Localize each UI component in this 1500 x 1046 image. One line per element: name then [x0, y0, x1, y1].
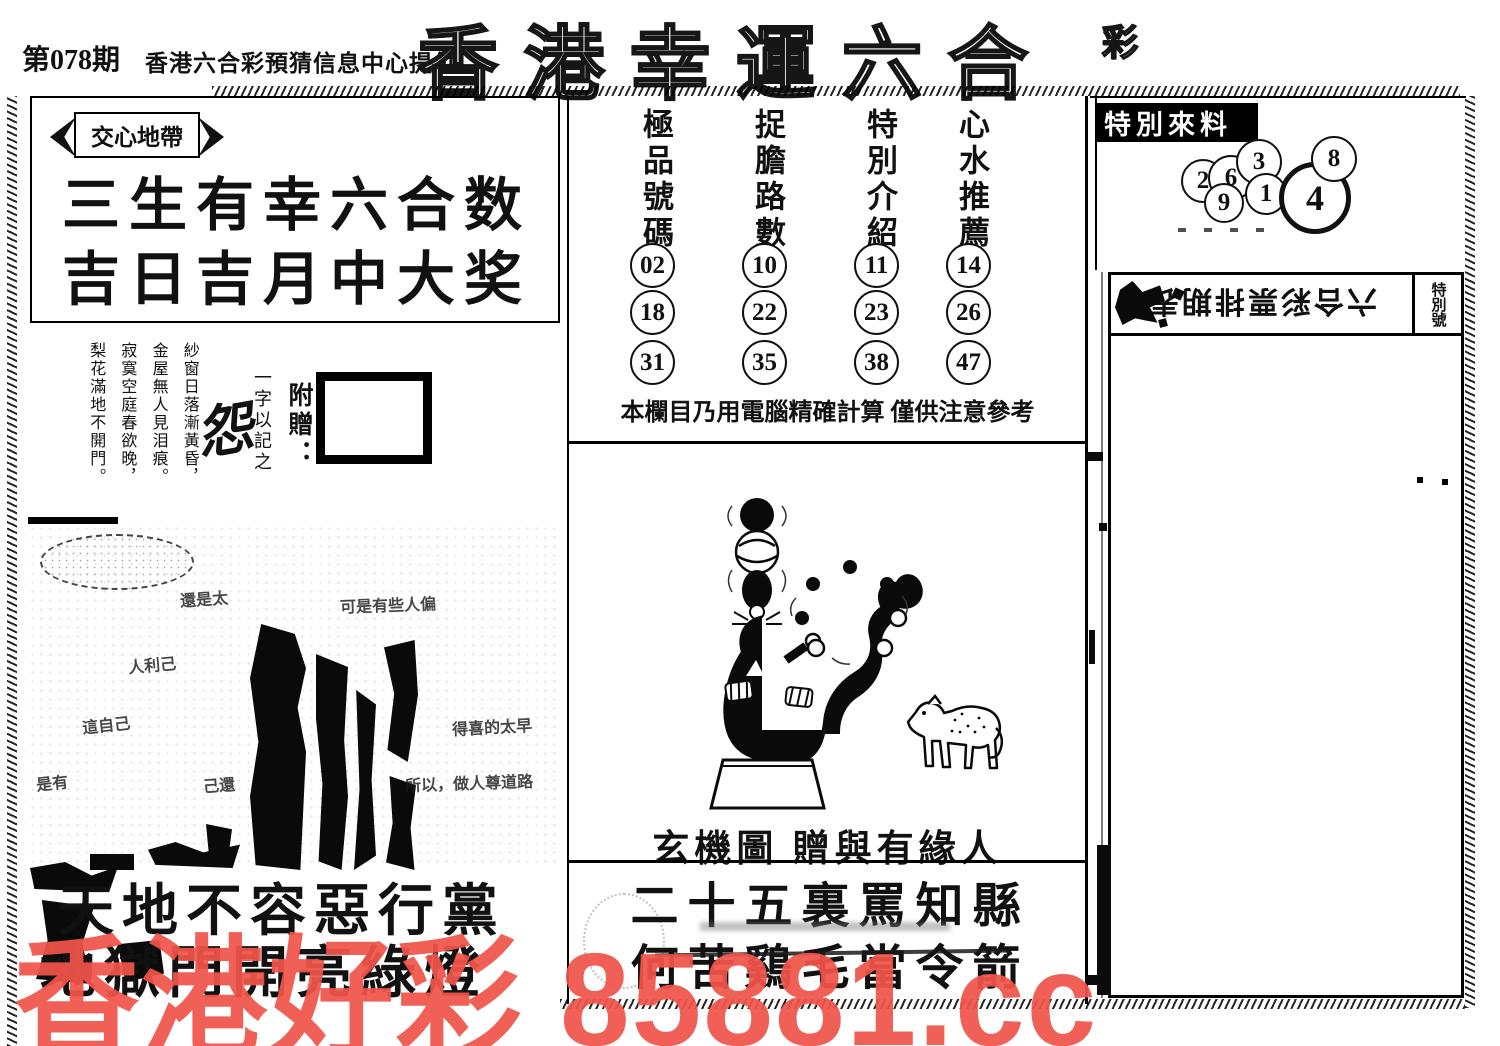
- lottery-number-ball: 35: [742, 340, 787, 385]
- text-fragment: 所以，做人尊道路: [405, 768, 534, 796]
- text-fragment: 這自己: [81, 710, 131, 739]
- lottery-tip-sheet: 第078期 香港六合彩預猜信息中心提供 香港幸運六合 彩 交心地帶 三生有幸六合…: [0, 0, 1500, 1046]
- lottery-number-ball: 31: [630, 340, 675, 385]
- computer-calculation-note: 本欄目乃用電腦精確計算 僅供注意參考: [575, 392, 1080, 427]
- lottery-number-ball: 47: [946, 340, 991, 385]
- gift-label: 附贈：: [280, 382, 316, 469]
- ellipsis-marks: [1178, 228, 1268, 232]
- ribbon-left-wing: [50, 117, 76, 157]
- poem-summary-note: 一字以記之: [249, 368, 275, 473]
- slogan-line-1: 三生有幸六合数: [62, 158, 531, 242]
- seal-juggling-illustration: [610, 470, 1060, 815]
- rule-fragment: [1099, 523, 1107, 531]
- watermark-overlay: 香港好彩 85881.cc: [14, 893, 1098, 1046]
- lottery-number-ball: 22: [742, 290, 787, 335]
- column-header-special-intro: 特別介紹: [857, 108, 902, 252]
- special-number-ball: 8: [1311, 136, 1357, 182]
- partial-rule: [28, 517, 118, 524]
- text-fragment: 是有: [35, 768, 69, 795]
- mystery-picture-caption: 玄機圖 贈與有緣人: [595, 818, 1060, 872]
- rule-fragment: [1089, 630, 1095, 664]
- middle-divider-2: [567, 860, 1088, 863]
- rule-fragment: [1086, 452, 1103, 461]
- schedule-title-upside-down: 六合彩票排期表: [1146, 282, 1377, 326]
- text-fragment: 還是太: [179, 584, 229, 611]
- column-header-bold-path: 捉膽路數: [745, 108, 790, 252]
- slogan-line-2: 吉日吉月中大奖: [62, 232, 531, 316]
- text-fragment: 得喜的太早: [451, 712, 532, 740]
- stray-dot: [1442, 479, 1448, 485]
- masthead-title-suffix: 彩: [1102, 14, 1138, 66]
- lottery-number-ball: 26: [946, 290, 991, 335]
- poem-line: 梨花滿地不開門。: [80, 342, 111, 527]
- issue-number: 第078期: [22, 38, 120, 78]
- lottery-number-ball: 02: [630, 243, 675, 288]
- poem-line: 金屋無人見泪痕。: [142, 342, 173, 527]
- column-header-premium-numbers: 極品號碼: [633, 108, 678, 252]
- poem-verse: 紗窗日落漸黃昏， 金屋無人見泪痕。 寂寞空庭春欲晚， 梨花滿地不開門。: [80, 342, 205, 527]
- lottery-number-ball: 38: [854, 340, 899, 385]
- top-lace-border: [212, 86, 1460, 96]
- speech-cloud: [40, 534, 194, 590]
- text-fragment: 可是有些人偏: [340, 590, 437, 617]
- middle-divider-1: [567, 441, 1088, 444]
- lottery-number-ball: 11: [854, 243, 899, 288]
- heart-zone-ribbon: 交心地帶: [52, 112, 222, 162]
- lottery-number-ball: 18: [630, 290, 675, 335]
- column-header-heart-pick: 心水推薦: [949, 108, 994, 252]
- ribbon-label: 交心地帶: [91, 118, 183, 152]
- ribbon-right-wing: [198, 117, 224, 157]
- special-number-ball: 9: [1204, 183, 1244, 223]
- ink-blob: [316, 654, 348, 870]
- special-feed-label-box: 特別來料: [1096, 103, 1258, 142]
- lottery-number-ball: 23: [854, 290, 899, 335]
- right-section-top-rule: [1090, 96, 1466, 98]
- schedule-corner-label: 特別號: [1428, 282, 1449, 327]
- ink-blob: [250, 624, 306, 870]
- text-fragment: 人利己: [127, 650, 177, 678]
- special-feed-label: 特別來料: [1104, 103, 1232, 142]
- lottery-number-ball: 10: [742, 243, 787, 288]
- schedule-table: 六合彩票排期表 特別號: [1108, 272, 1464, 998]
- stray-dot: [1417, 477, 1423, 483]
- gift-empty-box: [316, 372, 432, 464]
- text-fragment: 己還: [202, 771, 236, 797]
- right-lace-border: [1465, 96, 1475, 1008]
- poem-line: 寂寞空庭春欲晚，: [111, 342, 142, 527]
- lottery-number-ball: 14: [946, 243, 991, 288]
- degraded-scan-region: [28, 524, 562, 868]
- rule-fragment: [1097, 845, 1111, 995]
- provider-line: 香港六合彩預猜信息中心提供: [145, 44, 457, 78]
